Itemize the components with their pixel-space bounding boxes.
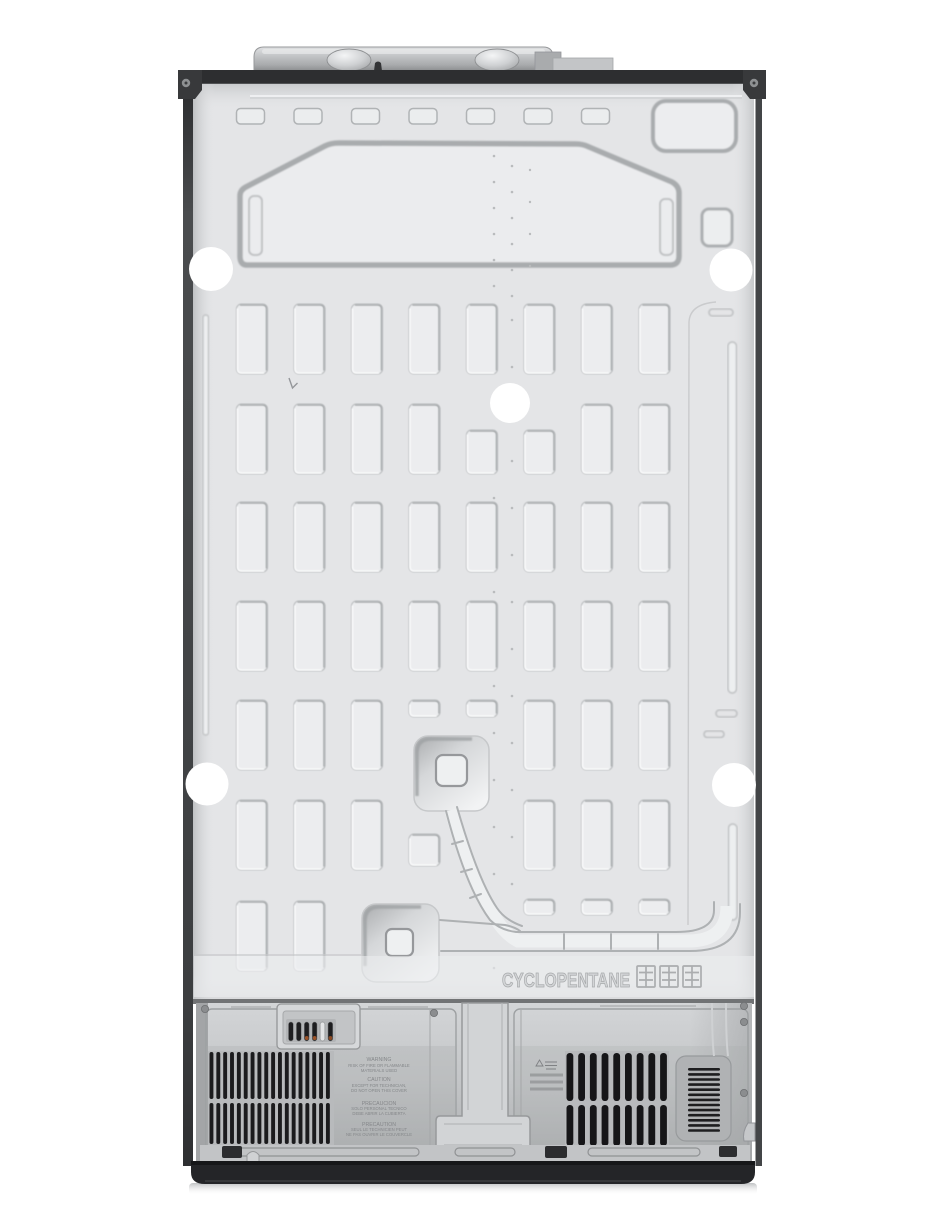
svg-text:NE PAS OUVRIR LE COUVERCLE: NE PAS OUVRIR LE COUVERCLE bbox=[346, 1132, 412, 1137]
svg-text:CYCLOPENTANE: CYCLOPENTANE bbox=[502, 970, 630, 992]
svg-text:DO NOT OPEN THIS COVER: DO NOT OPEN THIS COVER bbox=[351, 1088, 407, 1093]
svg-text:DEBE ABRIR LA CUBIERTA: DEBE ABRIR LA CUBIERTA bbox=[352, 1111, 405, 1116]
svg-text:MATERIALS USED: MATERIALS USED bbox=[361, 1068, 397, 1073]
